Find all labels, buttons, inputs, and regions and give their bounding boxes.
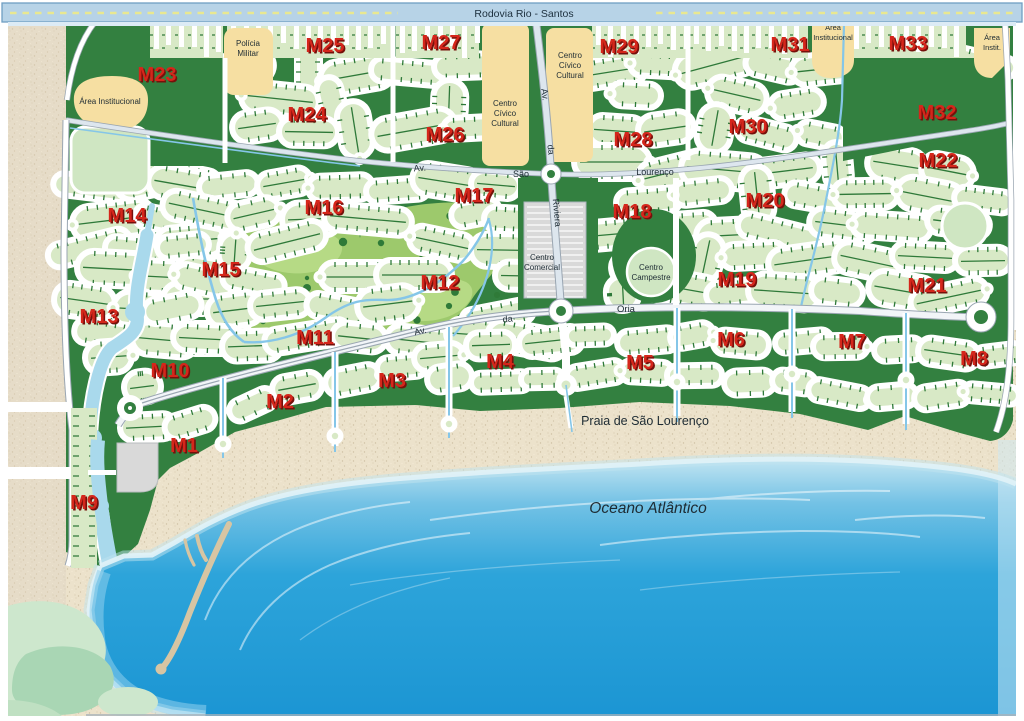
svg-text:Praia de São Lourenço: Praia de São Lourenço	[581, 414, 709, 428]
svg-text:M6: M6	[717, 329, 745, 351]
svg-text:Centro: Centro	[493, 99, 518, 108]
svg-text:M26: M26	[426, 124, 465, 146]
svg-text:Cívico: Cívico	[559, 61, 582, 70]
svg-text:M3: M3	[378, 370, 406, 392]
svg-text:M11: M11	[296, 327, 334, 349]
svg-text:M4: M4	[486, 351, 515, 373]
svg-text:M22: M22	[919, 150, 958, 172]
svg-text:M32: M32	[918, 102, 957, 124]
svg-text:Institucional: Institucional	[813, 33, 853, 42]
svg-text:M21: M21	[908, 275, 947, 297]
svg-text:da: da	[502, 313, 513, 324]
svg-text:Área Institucional: Área Institucional	[79, 97, 141, 106]
svg-text:M10: M10	[151, 360, 190, 382]
svg-text:M16: M16	[305, 197, 344, 219]
svg-text:M20: M20	[746, 190, 785, 212]
svg-text:M33: M33	[889, 33, 928, 55]
svg-text:Instit.: Instit.	[983, 43, 1001, 52]
svg-text:M29: M29	[600, 36, 639, 58]
svg-text:M27: M27	[422, 32, 461, 54]
svg-text:M15: M15	[202, 259, 241, 281]
svg-text:M17: M17	[455, 185, 494, 207]
svg-text:Av.: Av.	[413, 162, 426, 173]
svg-text:Centro: Centro	[558, 51, 583, 60]
svg-text:M12: M12	[421, 272, 460, 294]
svg-text:M30: M30	[729, 116, 768, 138]
svg-text:M7: M7	[838, 331, 866, 353]
svg-text:M24: M24	[288, 104, 328, 126]
svg-text:M28: M28	[614, 129, 653, 151]
svg-text:M9: M9	[70, 492, 98, 514]
svg-text:Cívico: Cívico	[494, 109, 517, 118]
svg-text:M14: M14	[108, 205, 148, 227]
svg-text:Lourenço: Lourenço	[636, 167, 674, 177]
svg-text:Oceano Atlântico: Oceano Atlântico	[589, 500, 707, 517]
svg-text:M13: M13	[80, 306, 119, 328]
svg-text:Campestre: Campestre	[631, 273, 671, 282]
svg-text:M5: M5	[626, 352, 654, 374]
svg-text:M18: M18	[613, 201, 652, 223]
svg-text:Oria: Oria	[617, 304, 636, 315]
svg-text:da: da	[545, 144, 556, 155]
svg-text:M25: M25	[306, 35, 345, 57]
svg-text:Rodovia Rio - Santos: Rodovia Rio - Santos	[474, 8, 573, 20]
svg-text:M1: M1	[170, 435, 198, 457]
svg-text:Cultural: Cultural	[491, 119, 519, 128]
svg-text:Comercial: Comercial	[524, 263, 560, 272]
svg-text:Polícia: Polícia	[236, 39, 261, 48]
svg-text:Centro: Centro	[530, 253, 555, 262]
svg-text:M2: M2	[266, 391, 294, 413]
svg-text:M23: M23	[138, 64, 177, 86]
svg-text:Área: Área	[984, 33, 1001, 42]
svg-text:M31: M31	[771, 34, 810, 56]
svg-text:Militar: Militar	[237, 49, 259, 58]
svg-text:M19: M19	[718, 269, 757, 291]
svg-text:Av.: Av.	[539, 88, 550, 101]
svg-text:São: São	[513, 169, 529, 179]
svg-text:M8: M8	[960, 348, 988, 370]
svg-text:Centro: Centro	[639, 263, 664, 272]
svg-text:Cultural: Cultural	[556, 71, 584, 80]
